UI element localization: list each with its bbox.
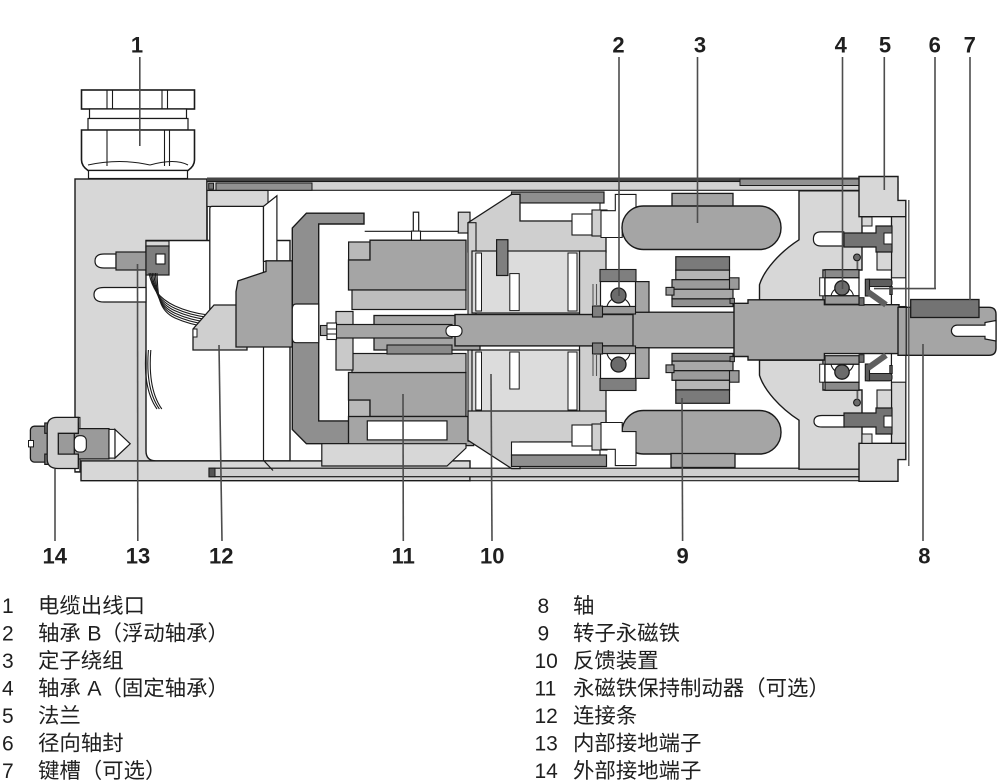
svg-text:6: 6 (2, 733, 14, 756)
svg-text:13: 13 (126, 544, 150, 569)
svg-text:11: 11 (535, 678, 557, 701)
svg-text:7: 7 (964, 32, 976, 57)
svg-text:3: 3 (2, 650, 14, 673)
svg-text:4: 4 (835, 32, 848, 57)
svg-text:1: 1 (131, 32, 143, 57)
svg-text:2: 2 (612, 32, 624, 57)
svg-text:9: 9 (538, 623, 550, 646)
svg-text:6: 6 (929, 32, 941, 57)
svg-text:4: 4 (2, 678, 14, 701)
svg-text:2: 2 (2, 623, 14, 646)
svg-text:5: 5 (2, 705, 14, 728)
svg-text:A: A (87, 677, 102, 701)
svg-text:11: 11 (392, 544, 415, 569)
svg-text:14: 14 (535, 760, 559, 783)
svg-text:13: 13 (535, 733, 558, 756)
svg-text:B: B (87, 622, 101, 646)
svg-text:5: 5 (879, 32, 891, 57)
svg-text:12: 12 (209, 544, 233, 569)
svg-text:12: 12 (535, 705, 558, 728)
svg-text:8: 8 (538, 595, 550, 618)
svg-text:8: 8 (918, 544, 930, 569)
svg-text:3: 3 (694, 32, 706, 57)
svg-text:1: 1 (2, 595, 14, 618)
svg-text:10: 10 (535, 650, 558, 673)
svg-text:7: 7 (2, 760, 14, 783)
svg-text:14: 14 (42, 544, 67, 569)
svg-text:9: 9 (676, 544, 688, 569)
svg-text:10: 10 (480, 544, 504, 569)
